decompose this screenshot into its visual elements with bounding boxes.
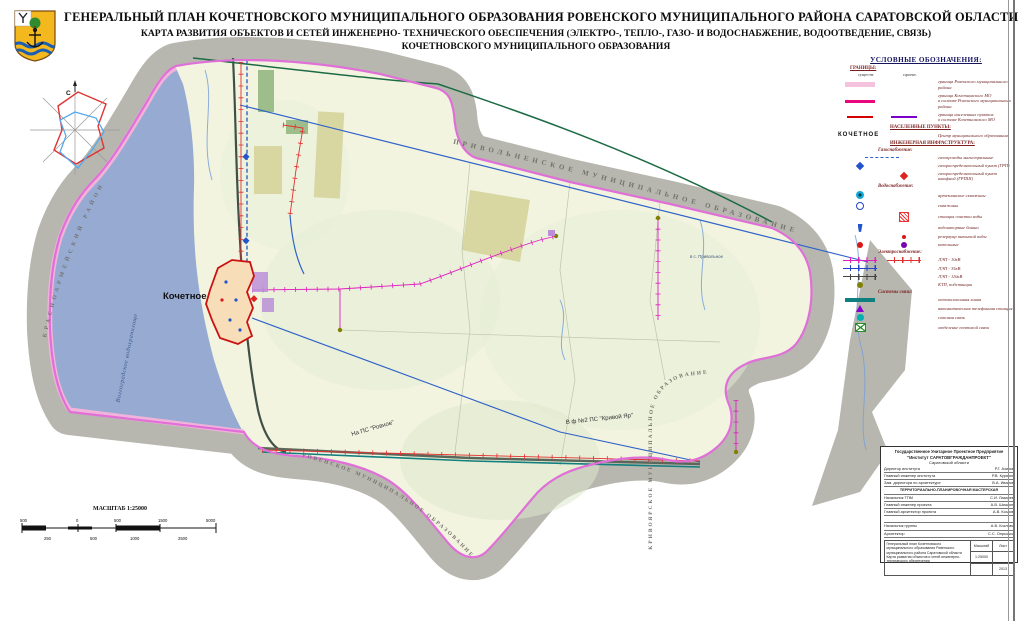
scale-tick: 500 [114,518,122,523]
water-treatment-symbol [899,212,909,222]
ats-label: автоматическая телефонная станция [938,306,1012,312]
mo-border-label: граница Кочетновского МО в составе Ровен… [938,93,1014,110]
stamp-value: С.И. Лазарев [990,495,1014,501]
legend-settlements-header: НАСЕЛЕННЫЕ ПУНКТЫ: [890,125,1014,130]
stamp-value: С.С. Опрышко [988,531,1014,537]
title-block-stamp: Государственное Унитарное Проектное Пред… [880,446,1018,563]
coat-of-arms [13,11,61,61]
lep110-label: ЛЭП - 110кВ [938,274,962,280]
stamp-label: Архитектор [884,531,905,537]
stamp-row-director: Директор института Р.Г. Азизов [884,466,1014,473]
well-label: скважины [938,203,958,209]
col-project: проект. [888,72,932,77]
lep35-label: ЛЭП - 35кВ [938,266,960,272]
fiber-label: оптоволоконная линия [938,297,981,303]
legend-row-grp: газораспределительный пункт (ГРП) [838,163,1014,169]
settlement-border-existing-symbol [847,116,873,118]
artesian-well-symbol [856,191,864,199]
stamp-value: Р.В. Курякин [992,473,1014,479]
grpsh-label: газораспределительный пункт шкафной (ГРП… [938,171,1014,182]
water-reservoir-symbol [902,235,907,240]
gas-pipeline-label: газопроводы магистральные [938,155,993,161]
stamp-year: 2013 [992,564,1013,575]
cellular-label: сотовая связь [938,315,965,321]
legend-row-cellular: сотовая связь [838,314,1014,321]
legend-row-ats: автоматическая телефонная станция [838,305,1014,312]
stamp-object-line1: Генеральный план Кочетновского муниципал… [887,542,969,555]
legend-row-water-tower: водонапорные башни [838,224,1014,232]
mo-border-symbol [845,100,875,103]
fiber-symbol [845,298,875,302]
scale-tick: 1000 [130,536,140,541]
stamp-value: А.В. Козлов [993,509,1014,515]
settlement-border-label-2: в составе Кочетновского МО [938,117,995,123]
stamp-row-deputy: Зам. директора по архитектуре В.А. Ивано… [884,480,1014,487]
legend-row-lep35: ЛЭП - 35кВ [838,265,1014,271]
legend-row-fiber: оптоволоконная линия [838,297,1014,303]
legend-electric-header: Электроснабжение: [878,250,1014,255]
to-privolnoe-label: в с. Привольное [690,254,724,259]
legend-row-water-treatment: станция очистки воды [838,212,1014,222]
mo-border-label-2: в составе Ровенского муниципального райо… [938,98,1014,109]
legend-row-gas-pipeline: газопроводы магистральные [838,155,1014,161]
col-existing: существ. [844,72,888,77]
scale-bar-graphic: 500 0 500 1500 5000 250 500 1000 2500 [18,512,222,544]
stamp-value: А.В. Шишкин [991,502,1014,508]
compass-north-label: С [66,90,71,97]
legend-gas-header: Газоснабжение: [878,148,1014,153]
legend-column-headers: существ. проект. [844,72,1014,77]
ats-symbol [856,305,864,312]
legend-row-ktp: КТП, подстанции [838,282,1014,288]
boiler-existing-symbol [857,242,863,248]
stamp-scale-header: Масштаб [971,541,992,552]
settlement-border-label: граница населенных пунктов в составе Коч… [938,112,995,123]
stamp-object-line2: Карта развития объектов и сетей инженерн… [887,555,969,564]
ktp-symbol [857,282,863,288]
boiler-project-symbol [901,242,907,248]
stamp-row-gip: Главный инженер проекта А.В. Шишкин [884,502,1014,509]
stamp-label: Главный архитектор проекта [884,509,936,515]
stamp-empty-cell [971,564,992,575]
grpsh-symbol [900,172,908,180]
scale-tick: 1500 [158,518,168,523]
legend-row-district-border: граница Ровенского муниципального района [838,79,1014,90]
stamp-row-gap: Главный архитектор проекта А.В. Козлов [884,509,1014,516]
stamp-row-group-head: Начальник группы А.В. Козлова [884,523,1014,530]
well-symbol [856,202,864,210]
gas-pipeline-symbol [865,157,899,158]
stamp-value: В.А. Иванов [992,480,1014,486]
stamp-label: Начальник группы [884,523,917,529]
stamp-sheet-value [992,552,1013,563]
water-tower-symbol [858,224,863,232]
stamp-value: Р.Г. Азизов [995,466,1014,472]
water-tower-label: водонапорные башни [938,225,979,231]
district-border-symbol [845,82,875,87]
water-reservoir-label: резервуар питьевой воды [938,234,987,240]
map-sheet: ПРИВОЛЬНЕНСКОЕ МУНИЦИПАЛЬНОЕ ОБРАЗОВАНИЕ… [0,0,1024,621]
stamp-organization: Государственное Унитарное Проектное Пред… [884,449,1014,466]
stamp-label: Начальник ТПМ [884,495,913,501]
sheet-frame-line-inner [1008,0,1009,621]
settlement-sample-label: Центр муниципального образования [938,133,1008,139]
legend-row-settlement-sample: КОЧЕТНОЕ Центр муниципального образовани… [838,132,1014,138]
settlement-border-project-symbol [891,116,917,118]
grp-symbol [856,161,864,169]
stamp-workshop-band: ТЕРРИТОРИАЛЬНО-ПЛАНИРОВОЧНАЯ МАСТЕРСКАЯ [884,487,1014,494]
artesian-well-label: артезианские скважины [938,193,986,199]
legend-borders-header: ГРАНИЦЫ: [850,66,1014,71]
legend-row-artesian-wells: артезианские скважины [838,191,1014,199]
legend-row-mo-border: граница Кочетновского МО в составе Ровен… [838,93,1014,110]
stamp-label: Главный инженер института [884,473,935,479]
scale-tick: 2500 [178,536,188,541]
scale-tick: 250 [44,536,52,541]
stamp-label: Зам. директора по архитектуре [884,480,941,486]
legend-title: УСЛОВНЫЕ ОБОЗНАЧЕНИЯ: [838,56,1014,64]
legend-row-wells: скважины [838,202,1014,210]
stamp-sheet-header: Лист [992,541,1013,552]
ktp-label: КТП, подстанции [938,282,972,288]
post-office-label: отделение почтовой связи [938,325,989,331]
settlement-sample-text: КОЧЕТНОЕ [838,132,879,138]
stamp-scale-grid: Масштаб Лист 1:25000 2013 [971,541,1013,575]
lep10-existing-symbol [843,257,877,263]
title-line-1: ГЕНЕРАЛЬНЫЙ ПЛАН КОЧЕТНОВСКОГО МУНИЦИПАЛ… [64,10,1008,25]
scale-tick: 500 [90,536,98,541]
legend-row-lep110: ЛЭП - 110кВ [838,274,1014,280]
settlement-label: Кочетное [163,291,207,302]
stamp-label: Директор института [884,466,920,472]
scale-tick: 500 [20,518,28,523]
scale-tick: 5000 [206,518,216,523]
legend-comm-header: Системы связи: [878,290,1014,295]
scale-bar: МАСШТАБ 1:25000 500 0 500 1500 5000 250 … [18,506,222,550]
scale-tick: 0 [76,518,79,523]
stamp-row-tpm-head: Начальник ТПМ С.И. Лазарев [884,495,1014,502]
stamp-row-chief-engineer: Главный инженер института Р.В. Курякин [884,473,1014,480]
water-treatment-label: станция очистки воды [938,214,982,220]
boiler-label: котельные [938,242,959,248]
legend-water-header: Водоснабжение: [878,184,1014,189]
legend-row-lep10: ЛЭП - 10кВ [838,257,1014,263]
lep10-label: ЛЭП - 10кВ [938,257,960,263]
legend-row-grpsh: газораспределительный пункт шкафной (ГРП… [838,171,1014,182]
title-line-2: КАРТА РАЗВИТИЯ ОБЪЕКТОВ И СЕТЕЙ ИНЖЕНЕРН… [64,28,1008,39]
stamp-row-architect: Архитектор С.С. Опрышко [884,531,1014,538]
stamp-object-cell: Генеральный план Кочетновского муниципал… [885,541,971,575]
stamp-gap [884,516,1014,523]
stamp-value: А.В. Козлова [991,523,1014,529]
district-border-label: граница Ровенского муниципального района [938,79,1014,90]
cellular-symbol [857,314,864,321]
stamp-org-line1: Государственное Унитарное Проектное Пред… [884,449,1014,455]
grp-label: газораспределительный пункт (ГРП) [938,163,1010,169]
legend: УСЛОВНЫЕ ОБОЗНАЧЕНИЯ: ГРАНИЦЫ: существ. … [838,56,1014,335]
legend-row-post: отделение почтовой связи [838,323,1014,332]
stamp-scale-value: 1:25000 [971,552,992,563]
stamp-label: Главный инженер проекта [884,502,931,508]
lep110-symbol [843,274,877,280]
legend-row-water-reservoir: резервуар питьевой воды [838,234,1014,240]
legend-infra-header: ИНЖЕНЕРНАЯ ИНФРАСТРУКТУРА: [890,141,1014,146]
post-office-symbol [855,323,866,332]
legend-row-boiler-houses: котельные [838,242,1014,248]
sheet-title: ГЕНЕРАЛЬНЫЙ ПЛАН КОЧЕТНОВСКОГО МУНИЦИПАЛ… [64,10,1008,52]
stamp-bottom-table: Генеральный план Кочетновского муниципал… [884,540,1014,576]
lep35-symbol [843,265,877,271]
title-line-3: КОЧЕТНОВСКОГО МУНИЦИПАЛЬНОГО ОБРАЗОВАНИЯ [64,41,1008,52]
lep10-project-symbol [887,257,921,263]
sheet-frame-line-outer [1013,0,1015,621]
legend-row-settlement-border: граница населенных пунктов в составе Коч… [838,112,1014,123]
